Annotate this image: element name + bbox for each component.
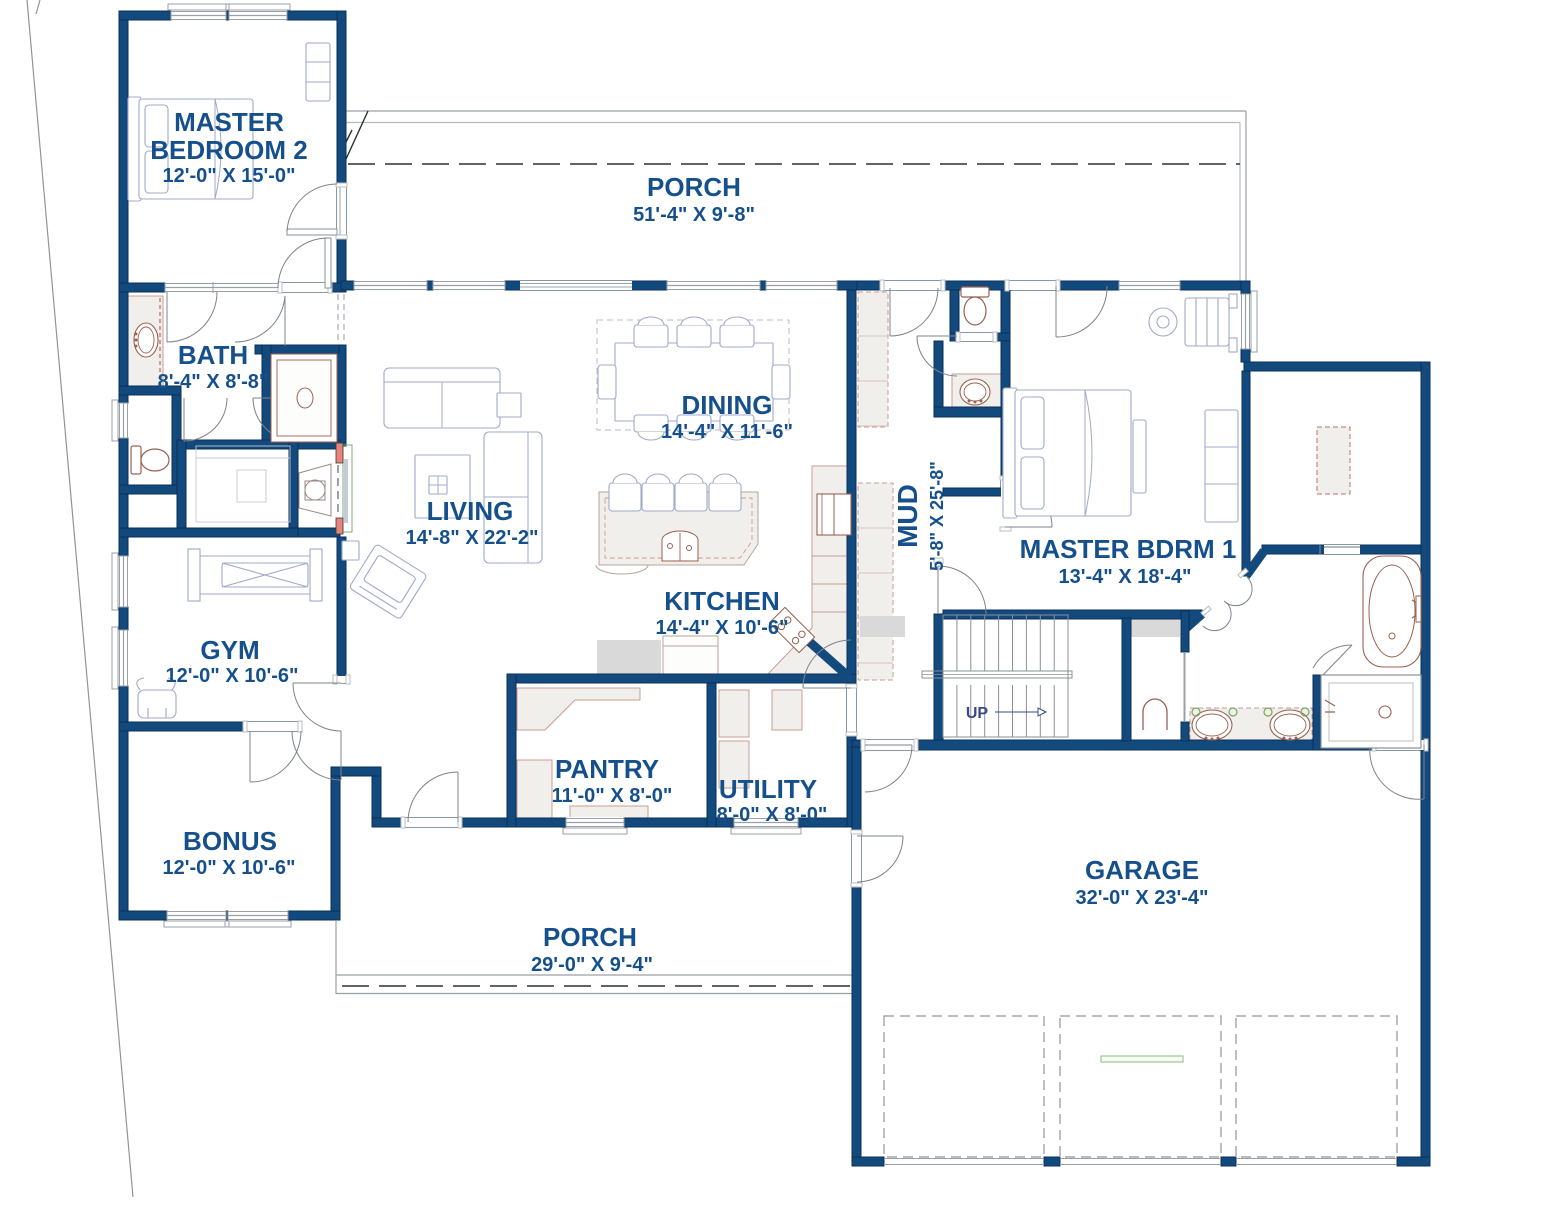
- svg-text:11'-0" X 8'-0": 11'-0" X 8'-0": [552, 785, 673, 807]
- svg-text:12'-0" X 10'-6": 12'-0" X 10'-6": [163, 857, 296, 879]
- svg-text:MASTER: MASTER: [174, 107, 284, 137]
- svg-text:12'-0" X 15'-0": 12'-0" X 15'-0": [163, 165, 296, 187]
- svg-text:8'-4" X 8'-8": 8'-4" X 8'-8": [158, 371, 269, 393]
- svg-text:MASTER BDRM 1: MASTER BDRM 1: [1020, 534, 1237, 564]
- svg-text:12'-0" X 10'-6": 12'-0" X 10'-6": [166, 665, 299, 687]
- svg-text:UP: UP: [966, 705, 989, 722]
- svg-text:UTILITY: UTILITY: [719, 774, 817, 804]
- svg-text:GYM: GYM: [200, 635, 259, 665]
- svg-text:32'-0" X 23'-4": 32'-0" X 23'-4": [1076, 887, 1209, 909]
- svg-text:5'-8" X 25'-8": 5'-8" X 25'-8": [927, 461, 947, 571]
- svg-text:PORCH: PORCH: [647, 172, 741, 202]
- svg-text:LIVING: LIVING: [427, 496, 514, 526]
- svg-text:BEDROOM 2: BEDROOM 2: [150, 135, 307, 165]
- svg-text:BONUS: BONUS: [183, 826, 277, 856]
- svg-text:29'-0" X 9'-4": 29'-0" X 9'-4": [531, 954, 653, 976]
- svg-text:GARAGE: GARAGE: [1085, 855, 1199, 885]
- svg-text:14'-4" X 10'-6": 14'-4" X 10'-6": [656, 617, 789, 639]
- svg-text:PORCH: PORCH: [543, 922, 637, 952]
- svg-text:DINING: DINING: [682, 390, 773, 420]
- svg-text:14'-4" X 11'-6": 14'-4" X 11'-6": [661, 421, 793, 443]
- svg-text:13'-4" X 18'-4": 13'-4" X 18'-4": [1059, 566, 1192, 588]
- svg-text:14'-8" X 22'-2": 14'-8" X 22'-2": [406, 527, 539, 549]
- svg-text:KITCHEN: KITCHEN: [664, 586, 780, 616]
- svg-text:BATH: BATH: [178, 340, 248, 370]
- svg-text:8'-0" X 8'-0": 8'-0" X 8'-0": [717, 804, 828, 826]
- svg-text:MUD: MUD: [892, 484, 923, 548]
- svg-text:PANTRY: PANTRY: [555, 754, 659, 784]
- svg-text:51'-4" X 9'-8": 51'-4" X 9'-8": [633, 204, 755, 226]
